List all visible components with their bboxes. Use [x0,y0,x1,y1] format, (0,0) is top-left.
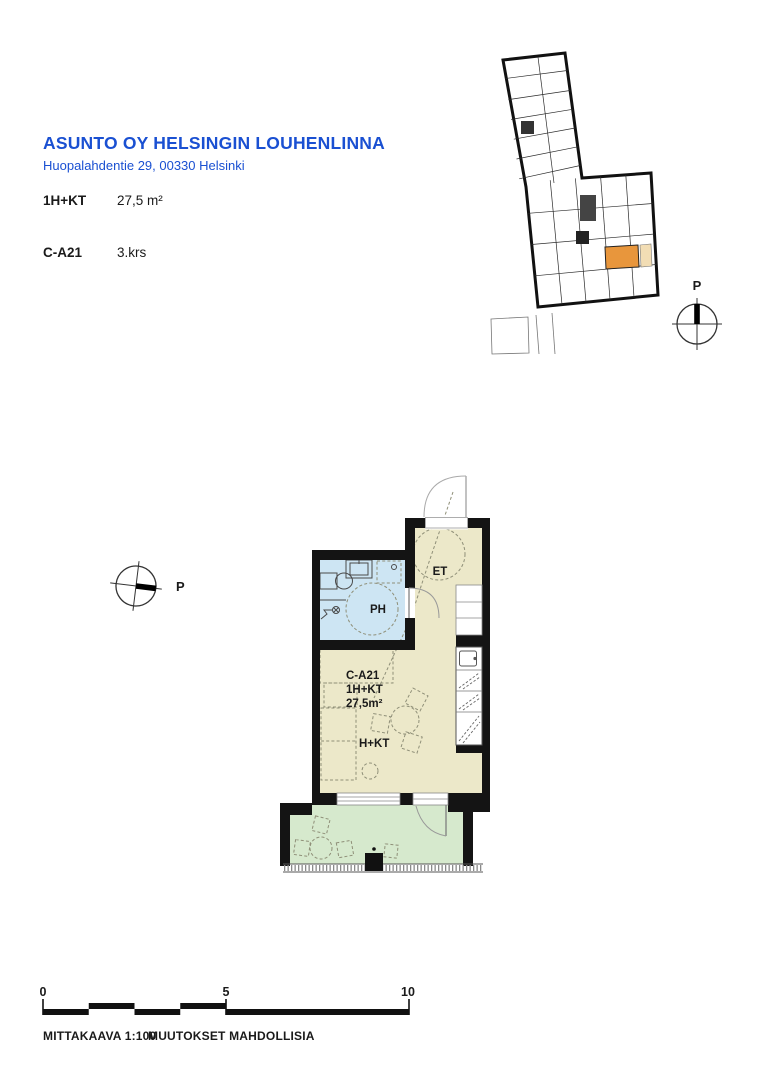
plan-unit-type: 1H+KT [346,684,383,696]
entry-label: ET [433,566,448,578]
north-compass-plan: P [106,556,198,616]
highlighted-unit [605,245,639,269]
unit-area-value: 27,5 m² [117,193,163,208]
north-needle-icon [136,583,157,591]
site-stair-core [576,231,589,244]
site-building-outline [503,53,658,307]
kitchen-units [456,647,482,745]
unit-type-label: 1H+KT [43,193,86,208]
footer-note: MITTAKAAVA 1:100 MUUTOKSET MAHDOLLISIA [43,1029,156,1043]
highlighted-unit-balcony [640,244,652,267]
unit-code-label: C-A21 [43,245,82,260]
site-plan [488,35,678,355]
page-title: ASUNTO OY HELSINGIN LOUHENLINNA [43,133,385,154]
north-label-site: P [693,278,702,293]
site-stairwell [521,121,534,134]
balcony-column [365,853,383,871]
plan-unit-area: 27,5m² [346,698,383,710]
window [337,793,400,805]
address-line: Huopalahdentie 29, 00330 Helsinki [43,158,245,173]
north-label-plan: P [176,579,185,594]
north-compass-site: P [668,276,726,352]
scale-tick-10: 10 [401,985,415,999]
room-label: H+KT [359,738,389,750]
site-elevator-core [580,195,596,221]
unit-floor-value: 3.krs [117,245,146,260]
changes-note: MUUTOKSET MAHDOLLISIA [148,1029,315,1043]
plan-unit-code: C-A21 [346,670,380,682]
floor-plan: ET PH C-A21 1H+KT 27,5m² H+KT [260,460,510,890]
spec-row-unit: C-A21 3.krs [43,245,82,260]
wardrobe [456,585,482,635]
scale-tick-5: 5 [223,985,230,999]
scale-bar: 0 5 10 [35,984,419,1022]
north-needle-icon [694,304,700,324]
entrance-door [424,476,468,530]
scale-segments [43,1003,409,1015]
spec-row-type: 1H+KT 27,5 m² [43,193,86,208]
site-ground-lines [491,313,555,354]
scale-tick-0: 0 [40,985,47,999]
scale-label: MITTAKAAVA 1:100 [43,1029,156,1043]
bathroom-label: PH [370,604,386,616]
